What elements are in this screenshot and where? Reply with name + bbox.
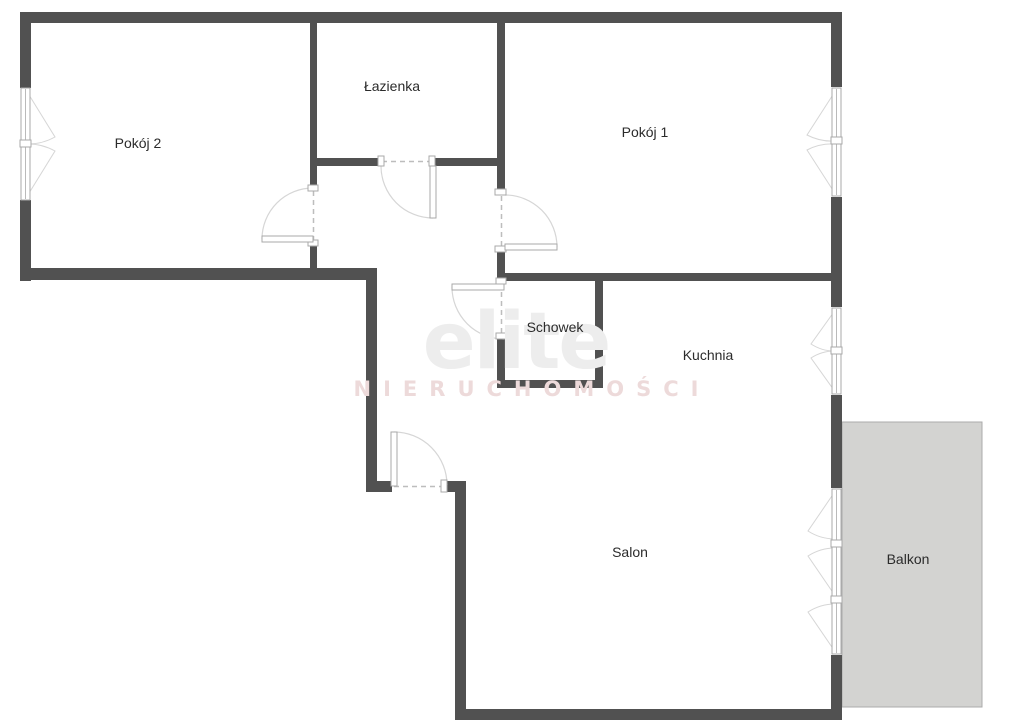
door-salon-leaf — [391, 432, 397, 486]
wall-salon-left — [455, 481, 466, 720]
wall-right-2 — [831, 197, 842, 307]
wall-top — [20, 12, 842, 23]
window-pokoj2-junction — [20, 140, 31, 147]
door-pokoj1-jamb-top — [495, 189, 506, 195]
door-lazienka — [378, 156, 436, 218]
door-salon — [391, 432, 447, 492]
door-pokoj1-swing-arc — [505, 195, 557, 247]
wall-salon-door-stub-left — [377, 481, 392, 492]
door-lazienka-jamb-left — [378, 156, 384, 166]
wall-right-1 — [831, 12, 842, 87]
room-label-pokoj1: Pokój 1 — [622, 124, 669, 140]
wall-lazienka-bottom-right — [433, 158, 505, 166]
window-salon-balcony — [808, 489, 842, 654]
watermark-brand: elite — [423, 297, 610, 387]
room-label-salon: Salon — [612, 544, 648, 560]
wall-pokoj2-bottom — [20, 268, 377, 280]
window-kuchnia — [811, 308, 842, 394]
door-lazienka-leaf — [430, 166, 436, 218]
door-pokoj1-leaf — [505, 244, 557, 250]
wall-right-3 — [831, 395, 842, 488]
room-label-pokoj2: Pokój 2 — [115, 135, 162, 151]
wall-kuchnia-top — [497, 273, 842, 281]
wall-lazienka-bottom-left — [310, 158, 380, 166]
door-salon-jamb-right — [441, 480, 447, 492]
door-schowek-jamb-top — [496, 278, 506, 284]
door-pokoj2-swing-arc — [262, 188, 313, 239]
floor-plan-page: elite NIERUCHOMOŚCI Pokój 2 Łazienka Pok… — [0, 0, 1024, 721]
window-pokoj2 — [20, 88, 55, 200]
window-salon-junction-2 — [831, 596, 842, 603]
door-pokoj2 — [262, 185, 318, 246]
window-pokoj1 — [807, 88, 842, 196]
watermark-subtitle: NIERUCHOMOŚCI — [354, 377, 711, 401]
room-label-lazienka: Łazienka — [364, 78, 420, 94]
door-pokoj2-jamb-top — [308, 185, 318, 191]
window-salon-junction-1 — [831, 540, 842, 547]
door-pokoj2-leaf — [262, 236, 313, 242]
wall-lazienka-pokoj1-upper — [497, 12, 505, 195]
wall-left-upper — [20, 12, 31, 88]
door-pokoj1-jamb-bottom — [495, 246, 506, 252]
room-label-balkon: Balkon — [887, 551, 930, 567]
room-label-kuchnia: Kuchnia — [683, 347, 734, 363]
window-pokoj1-junction — [831, 137, 842, 144]
door-lazienka-swing-arc — [381, 166, 433, 218]
door-schowek-leaf — [452, 284, 504, 290]
door-lazienka-jamb-right — [429, 156, 435, 166]
wall-bottom — [455, 709, 842, 720]
window-kuchnia-junction — [831, 347, 842, 354]
door-salon-swing-arc — [394, 432, 447, 485]
door-pokoj1 — [495, 189, 557, 252]
room-label-schowek: Schowek — [527, 319, 584, 335]
